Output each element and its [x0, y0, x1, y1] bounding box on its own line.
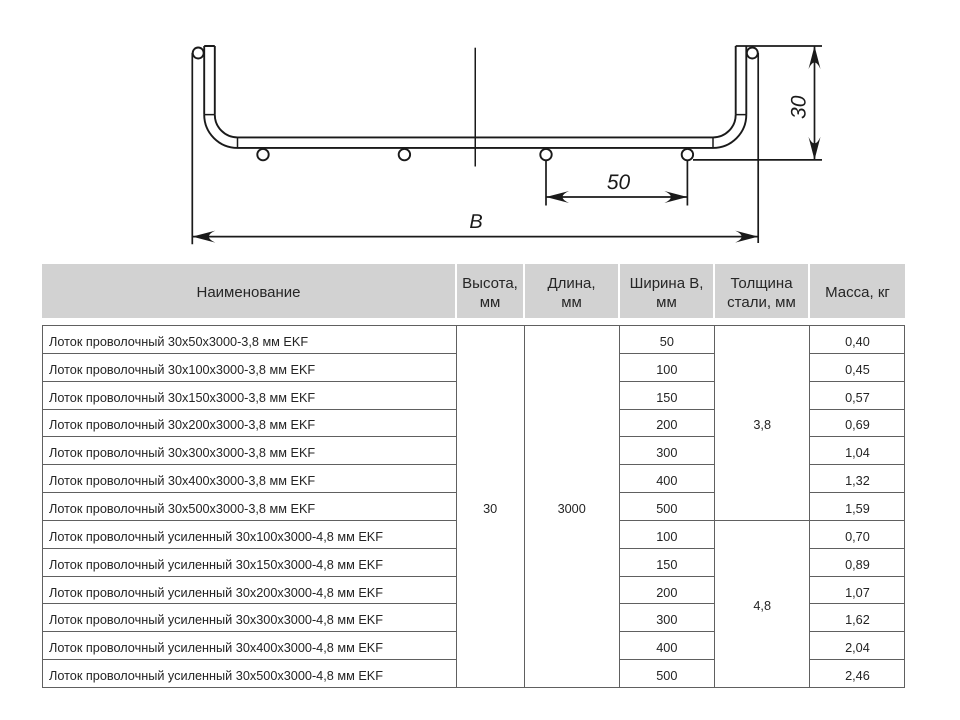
svg-text:B: B — [469, 211, 482, 233]
svg-text:30: 30 — [788, 95, 811, 119]
svg-text:50: 50 — [607, 171, 631, 194]
